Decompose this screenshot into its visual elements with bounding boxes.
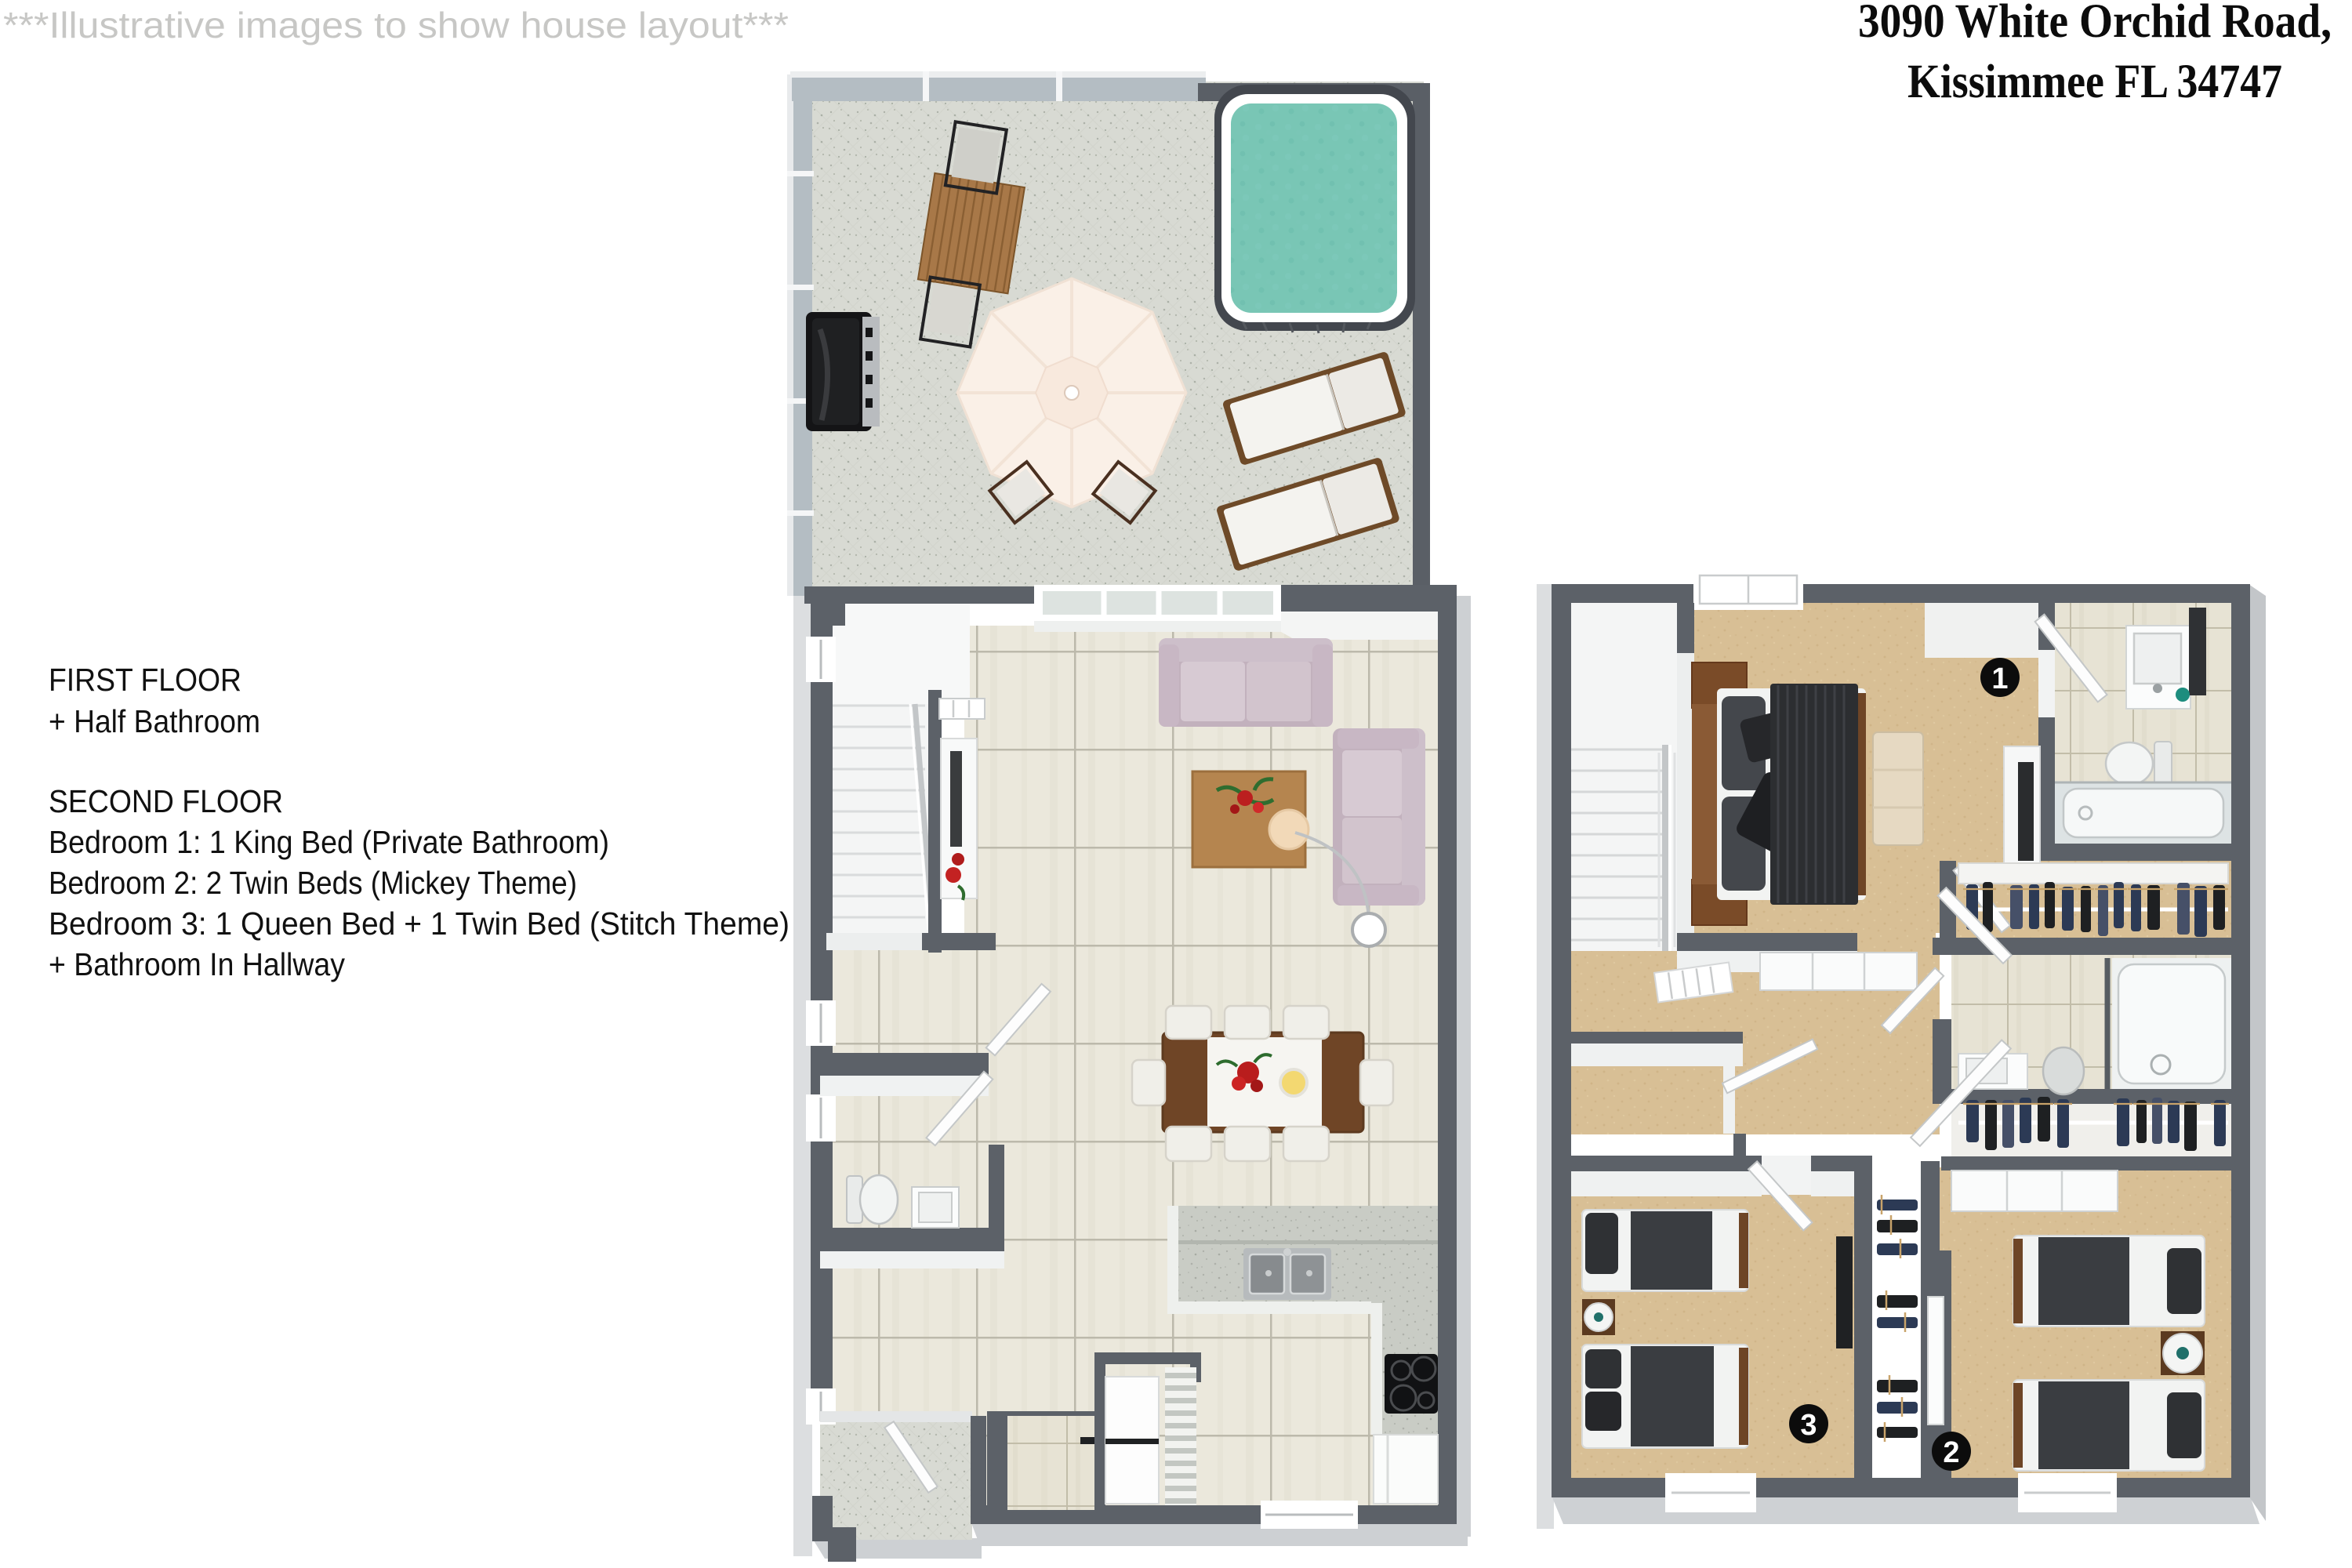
svg-text:2: 2 (1943, 1436, 1959, 1469)
svg-text:Bedroom 3: 1 Queen Bed + 1 Twi: Bedroom 3: 1 Queen Bed + 1 Twin Bed (Sti… (49, 906, 789, 942)
svg-text:+ Half Bathroom: + Half Bathroom (49, 703, 260, 739)
svg-text:3090 White Orchid Road,: 3090 White Orchid Road, (1858, 0, 2332, 48)
svg-text:***Illustrative images to show: ***Illustrative images to show house lay… (3, 5, 789, 45)
svg-text:+ Bathroom In Hallway: + Bathroom In Hallway (49, 946, 345, 982)
svg-text:1: 1 (1991, 662, 2008, 695)
svg-text:SECOND FLOOR: SECOND FLOOR (49, 783, 283, 819)
svg-text:FIRST FLOOR: FIRST FLOOR (49, 662, 241, 698)
svg-text:Kissimmee FL 34747: Kissimmee FL 34747 (1907, 56, 2282, 108)
svg-text:3: 3 (1800, 1409, 1817, 1442)
svg-text:Bedroom 2: 2 Twin Beds (Mickey: Bedroom 2: 2 Twin Beds (Mickey Theme) (49, 865, 577, 901)
svg-text:Bedroom 1: 1 King Bed (Private: Bedroom 1: 1 King Bed (Private Bathroom) (49, 824, 609, 860)
